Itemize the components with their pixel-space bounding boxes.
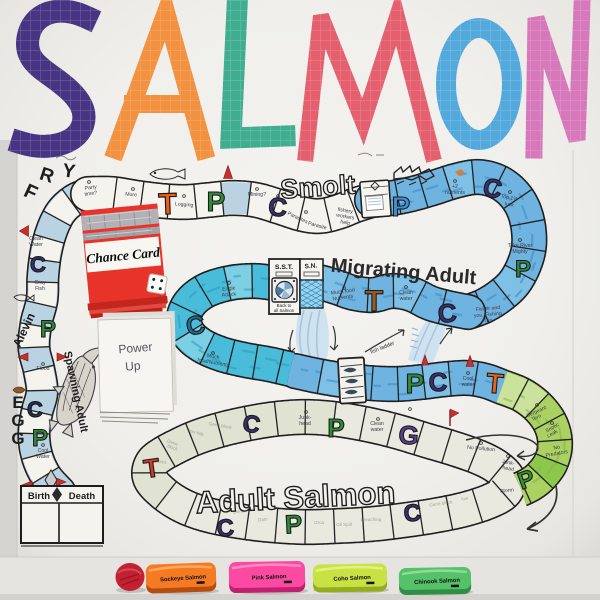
svg-text:Mighty: Mighty [512,249,528,255]
svg-text:Power: Power [118,340,153,357]
svg-text:G: G [397,419,420,451]
svg-text:P: P [40,316,56,343]
svg-text:More: More [125,191,137,198]
svg-text:T: T [158,188,177,222]
svg-text:head: head [299,421,311,427]
svg-text:T: T [485,367,505,399]
svg-text:Dam: Dam [258,517,268,523]
svg-text:water: water [371,427,384,433]
svg-text:C: C [437,297,459,329]
svg-text:Fish: Fish [35,286,45,292]
svg-text:Smolt: Smolt [279,169,356,204]
svg-text:Orca: Orca [314,520,324,525]
svg-text:Flood: Flood [37,366,50,372]
svg-text:C: C [30,252,46,277]
svg-text:Birth: Birth [28,491,50,502]
svg-text:S.N.: S.N. [304,262,317,270]
svg-text:G: G [11,429,24,448]
svg-text:E: E [12,393,23,412]
svg-text:Storm: Storm [500,487,514,494]
svg-text:P: P [327,413,344,443]
svg-text:Mining?: Mining? [248,192,266,198]
svg-text:P: P [392,191,411,222]
svg-text:water: water [400,296,413,302]
svg-text:C: C [429,367,448,397]
svg-text:C: C [403,499,423,527]
svg-text:Breaching: Breaching [361,517,382,522]
svg-text:P: P [207,186,226,217]
svg-text:water: water [462,382,475,388]
svg-text:Trip: Trip [483,318,492,325]
svg-text:G: G [11,411,24,430]
svg-text:all Salmon: all Salmon [274,308,295,313]
svg-text:T: T [365,285,383,318]
svg-text:Oil Spill: Oil Spill [336,522,352,527]
svg-text:S.S.T.: S.S.T. [275,264,293,271]
svg-text:Death: Death [69,491,96,502]
svg-text:P: P [515,256,531,283]
svg-text:Water: Water [29,242,43,248]
svg-text:P: P [406,368,425,399]
svg-text:Up: Up [125,359,142,374]
svg-text:Water: Water [36,454,50,460]
svg-text:nutrients: nutrients [445,190,465,196]
svg-text:C: C [27,397,43,422]
